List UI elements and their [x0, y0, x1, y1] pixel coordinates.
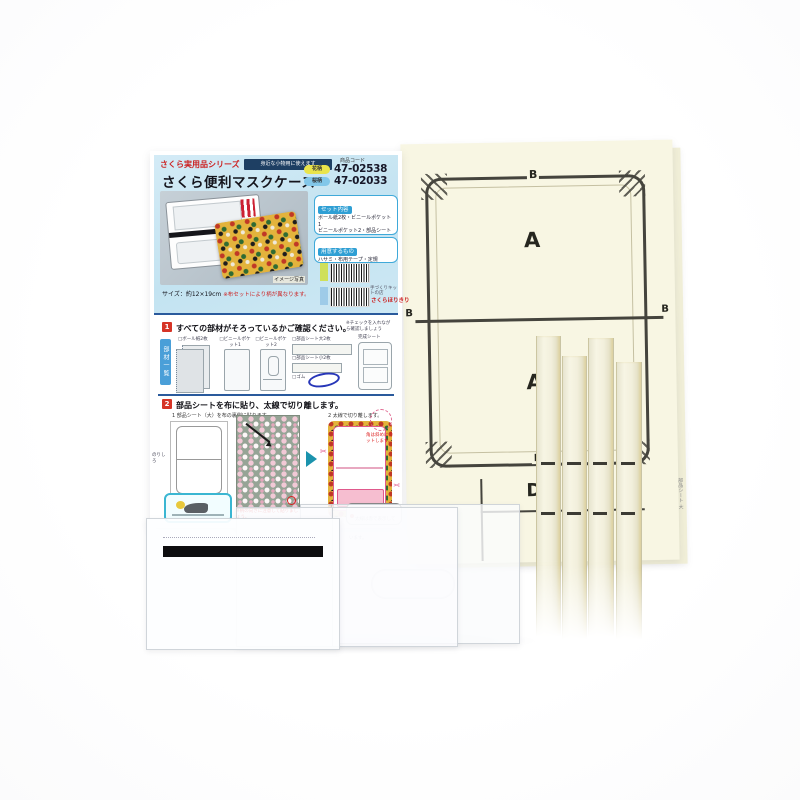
step1-side-note: ※チェックを入れながら確認しましょう: [346, 321, 394, 332]
strip-mark: [541, 462, 555, 465]
step1-number: 1: [162, 322, 172, 332]
iron-board-line: [172, 514, 224, 516]
parts-list-label: 部材一覧: [160, 339, 171, 385]
maker-note: 手づくりキットの店: [370, 287, 398, 296]
pocket2-line: [263, 379, 282, 380]
strip-mark: [621, 512, 635, 515]
barcode-1: [330, 263, 370, 283]
iron-illustration: [184, 503, 208, 513]
rubber-band-diagram: [307, 370, 341, 389]
maker-logo: 手づくりキットの店 さくらほりきり: [370, 287, 398, 304]
step2-number: 2: [162, 399, 172, 409]
part-caption-rubber: □ゴム: [292, 375, 305, 381]
part-caption-pocket1: □ビニールポケット1: [218, 337, 252, 348]
template-outline: [176, 426, 222, 494]
fabric-arrow: [246, 423, 271, 443]
part-caption-sheet-small: □部品シート小2枚: [292, 356, 331, 362]
corner-cut-note: 角は斜めにカットします。: [366, 433, 396, 445]
finished-top-box: [363, 349, 388, 365]
size-note-main: サイズ：約12×19cm: [162, 291, 221, 298]
board-sheet-diagram-2: [176, 349, 204, 393]
label-b-right: B: [661, 304, 669, 315]
finished-sheet-diagram: [358, 342, 392, 390]
product-code-1: 47-02538: [334, 163, 387, 175]
fabric-arrowhead: [266, 441, 274, 449]
step1-heading: すべての部材がそろっているかご確認ください。: [176, 323, 351, 334]
size-note-red: ※布セットにより柄が異なります。: [223, 292, 309, 298]
label-b-top: B: [527, 169, 540, 180]
cardboard-strip-3: [588, 338, 614, 646]
strip-mark: [593, 462, 607, 465]
scissors-icon: ✂: [393, 481, 400, 490]
magnet-strip: [163, 546, 323, 557]
strip-mark: [541, 512, 555, 515]
prepare-heading: 用意するもの: [318, 248, 357, 256]
cardboard-strip-2: [562, 356, 587, 648]
series-label: さくら実用品シリーズ: [160, 159, 240, 170]
scissors-icon: ✂: [320, 447, 327, 456]
cut-result-midline: [336, 467, 383, 469]
part-caption-pocket2: □ビニールポケット2: [254, 337, 288, 348]
corner-hatch-bl: [426, 442, 452, 468]
set-contents-heading: セット内容: [318, 206, 352, 214]
step2-heading: 部品シートを布に貼り、太線で切り離します。: [176, 400, 343, 411]
set-line: ビニールポケット2・部品シート大2枚: [315, 228, 397, 235]
label-a-upper: A: [524, 228, 541, 252]
finished-bottom-box: [363, 367, 388, 383]
template-midline: [177, 459, 221, 460]
maker-name: さくらほりきり: [371, 296, 410, 304]
fabric-red-mark: [287, 496, 296, 505]
package-header-panel: さくら実用品シリーズ 身近な小物用に使えます さくら便利マスクケース イメージ写…: [154, 155, 398, 315]
strip-mark: [567, 512, 581, 515]
vinyl-pocket-left: [146, 518, 340, 650]
sheet-small-diagram: [292, 363, 342, 373]
corner-hatch-tr: [619, 170, 645, 196]
cardboard-strip-1: [536, 336, 561, 646]
prepare-box: 用意するもの ハサミ・布用テープ・定規 ボンドタッチ（ボンド）・鉛筆: [314, 237, 398, 263]
part-caption-finished: 完成シート: [358, 335, 381, 341]
strip-mark: [593, 512, 607, 515]
photo-caption: イメージ写真: [273, 276, 305, 283]
pocket1-diagram: [224, 349, 250, 391]
cardboard-strip-4: [616, 362, 642, 648]
variant-badge-yellow: 花柄: [304, 165, 330, 174]
instruction-sheet: さくら実用品シリーズ 身近な小物用に使えます さくら便利マスクケース イメージ写…: [150, 151, 402, 528]
sheet-large-diagram: [292, 344, 352, 355]
set-contents-box: セット内容 ボール紙2枚・ビニールポケット1 ビニールポケット2・部品シート大2…: [314, 195, 398, 235]
barcode-tab-2: [320, 287, 328, 305]
product-photo-inset: イメージ写真: [160, 191, 308, 285]
pocket2-slot: [268, 356, 279, 376]
iron-highlight: [176, 501, 185, 509]
corner-hatch-tl: [421, 174, 447, 200]
size-note: サイズ：約12×19cm ※布セットにより柄が異なります。: [162, 289, 310, 298]
mask-case-closed: [214, 211, 304, 279]
fabric-swatch: [236, 415, 300, 509]
product-code-2: 47-02033: [334, 175, 387, 187]
set-line: ボール紙2枚・ビニールポケット1: [315, 215, 397, 228]
label-b-left: B: [405, 308, 413, 319]
glue-note: のりしろ: [152, 453, 168, 464]
barcode-2: [330, 287, 370, 307]
stitch-line: [163, 537, 315, 538]
barcode-tab-1: [320, 263, 328, 281]
product-photo: 部品シート 大 B A B B A B D: [0, 0, 800, 800]
process-arrow: [306, 451, 317, 467]
product-title: さくら便利マスクケース: [162, 171, 315, 191]
part-caption-sheet-large: □部品シート大2枚: [292, 337, 331, 343]
strip-mark: [567, 462, 581, 465]
strip-mark: [621, 462, 635, 465]
variant-badge-blue: 桜柄: [304, 177, 330, 186]
corner-cut-circle: [370, 409, 392, 431]
part-caption-board: □ボール紙2枚: [178, 337, 208, 343]
case-red-tabs: [240, 198, 256, 217]
section-divider: [158, 394, 394, 396]
pocket2-diagram: [260, 349, 286, 391]
